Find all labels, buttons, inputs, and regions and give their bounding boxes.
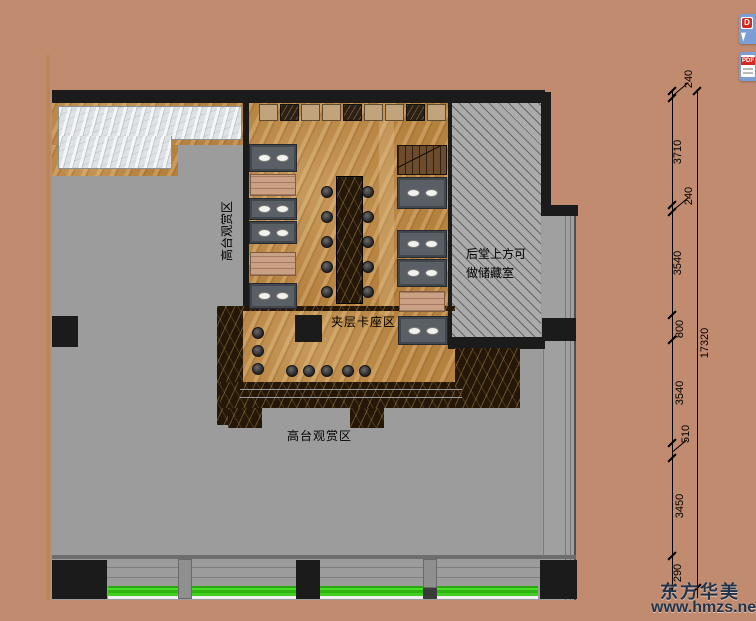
dimension-label: 3540 <box>674 381 686 405</box>
column <box>295 315 322 342</box>
bar-stool <box>321 261 333 273</box>
column <box>52 560 107 599</box>
plate <box>258 292 271 300</box>
booth-seat <box>397 177 447 209</box>
plate <box>276 292 289 300</box>
right-edge-line <box>574 207 576 600</box>
bar-stool <box>321 365 333 377</box>
side-table <box>322 104 341 121</box>
promenade-divider <box>423 559 437 588</box>
dimension-total-label: 17320 <box>699 328 711 359</box>
plate <box>425 240 438 248</box>
promenade-divider <box>178 559 192 599</box>
download-icon: D <box>741 17 753 29</box>
booth-seat <box>249 198 297 220</box>
plate <box>408 327 421 335</box>
room-label-left-viewing-area: 高台观赏区 <box>220 200 234 262</box>
column <box>52 316 78 347</box>
stairs <box>397 145 447 175</box>
floor-separation-line <box>543 348 544 556</box>
room-label-bottom-viewing-area: 高台观赏区 <box>287 429 352 443</box>
dining-table <box>250 252 296 276</box>
side-table <box>364 104 383 121</box>
bar-stool <box>362 261 374 273</box>
pdf-icon: PDF <box>741 55 755 77</box>
bar-stool <box>359 365 371 377</box>
bar-stool <box>252 345 264 357</box>
planting-strip <box>108 586 538 596</box>
side-table <box>301 104 320 121</box>
side-table <box>280 104 299 121</box>
bar-stool <box>321 186 333 198</box>
dimension-line-outer <box>697 90 698 598</box>
bar-stool <box>362 236 374 248</box>
dimension-label: 240 <box>683 187 695 205</box>
marble-entry-slab <box>58 106 242 140</box>
plate <box>425 269 438 277</box>
corridor-wall-block <box>542 318 576 341</box>
dimension-label: 3710 <box>672 140 684 164</box>
storage-note-line2: 做储藏室 <box>466 266 514 280</box>
plan-left-boundary-line <box>46 55 50 600</box>
dining-walk-path <box>379 103 394 315</box>
plate <box>425 189 438 197</box>
divider-base-block <box>423 588 437 599</box>
plate <box>407 269 420 277</box>
communal-table <box>336 176 363 304</box>
marble-entry-slab <box>58 136 172 169</box>
storage-right-wall <box>541 92 551 207</box>
dimension-label: 240 <box>683 70 695 88</box>
dining-table <box>250 174 296 196</box>
column <box>296 560 320 599</box>
booth-seat <box>398 316 448 345</box>
booth-seat <box>397 230 447 258</box>
bar-stool <box>321 236 333 248</box>
bar-stool <box>362 286 374 298</box>
booth-seat <box>249 144 297 172</box>
dimension-label: 3450 <box>674 494 686 518</box>
mezzanine-marble-right-block <box>455 348 520 408</box>
plate <box>258 154 271 162</box>
promenade-top-line <box>52 555 576 559</box>
bar-stool <box>321 211 333 223</box>
curb-strip <box>108 596 538 599</box>
plate <box>276 154 289 162</box>
counter-edge-line <box>240 389 462 390</box>
bar-stool <box>321 286 333 298</box>
download-button[interactable]: D <box>739 14 756 44</box>
side-table <box>427 104 446 121</box>
bar-stool <box>342 365 354 377</box>
watermark-url: www.hmzs.net <box>651 599 756 617</box>
dimension-label: 510 <box>680 425 692 443</box>
booth-seat <box>249 283 297 309</box>
storage-hatch-area <box>450 102 541 342</box>
plate <box>258 205 271 213</box>
pdf-button[interactable]: PDF <box>739 52 756 81</box>
mezzanine-marble-step <box>228 408 262 428</box>
side-table <box>343 104 362 121</box>
side-table <box>259 104 278 121</box>
bar-stool <box>303 365 315 377</box>
mezzanine-marble-bottom-band <box>220 382 470 408</box>
plate <box>407 189 420 197</box>
plate <box>276 229 289 237</box>
right-notch-wall <box>541 205 578 216</box>
plate <box>258 229 271 237</box>
cursor-icon <box>741 32 748 42</box>
mezzanine-marble-step <box>350 408 384 428</box>
right-corridor-detail-line <box>565 216 566 600</box>
side-table <box>406 104 425 121</box>
dimension-label: 800 <box>674 320 686 338</box>
right-corridor-detail-line <box>570 216 571 600</box>
bar-stool <box>362 186 374 198</box>
room-label-mezzanine: 夹层卡座区 <box>331 315 396 329</box>
column <box>540 560 577 599</box>
plate <box>276 205 289 213</box>
counter-edge-line <box>240 397 462 398</box>
booth-seat <box>249 221 297 244</box>
booth-seat <box>397 259 447 287</box>
side-table <box>385 104 404 121</box>
storage-note-line1: 后堂上方可 <box>466 247 526 261</box>
plate <box>426 327 439 335</box>
top-wall <box>52 90 545 103</box>
plate <box>407 240 420 248</box>
floorplan-page: 高台观赏区 高台观赏区 夹层卡座区 后堂上方可 做储藏室 240 3710 24… <box>0 0 756 621</box>
dining-table <box>399 291 445 312</box>
bar-stool <box>252 327 264 339</box>
bar-stool <box>252 363 264 375</box>
dimension-label: 3540 <box>672 251 684 275</box>
bar-stool <box>362 211 374 223</box>
bar-stool <box>286 365 298 377</box>
